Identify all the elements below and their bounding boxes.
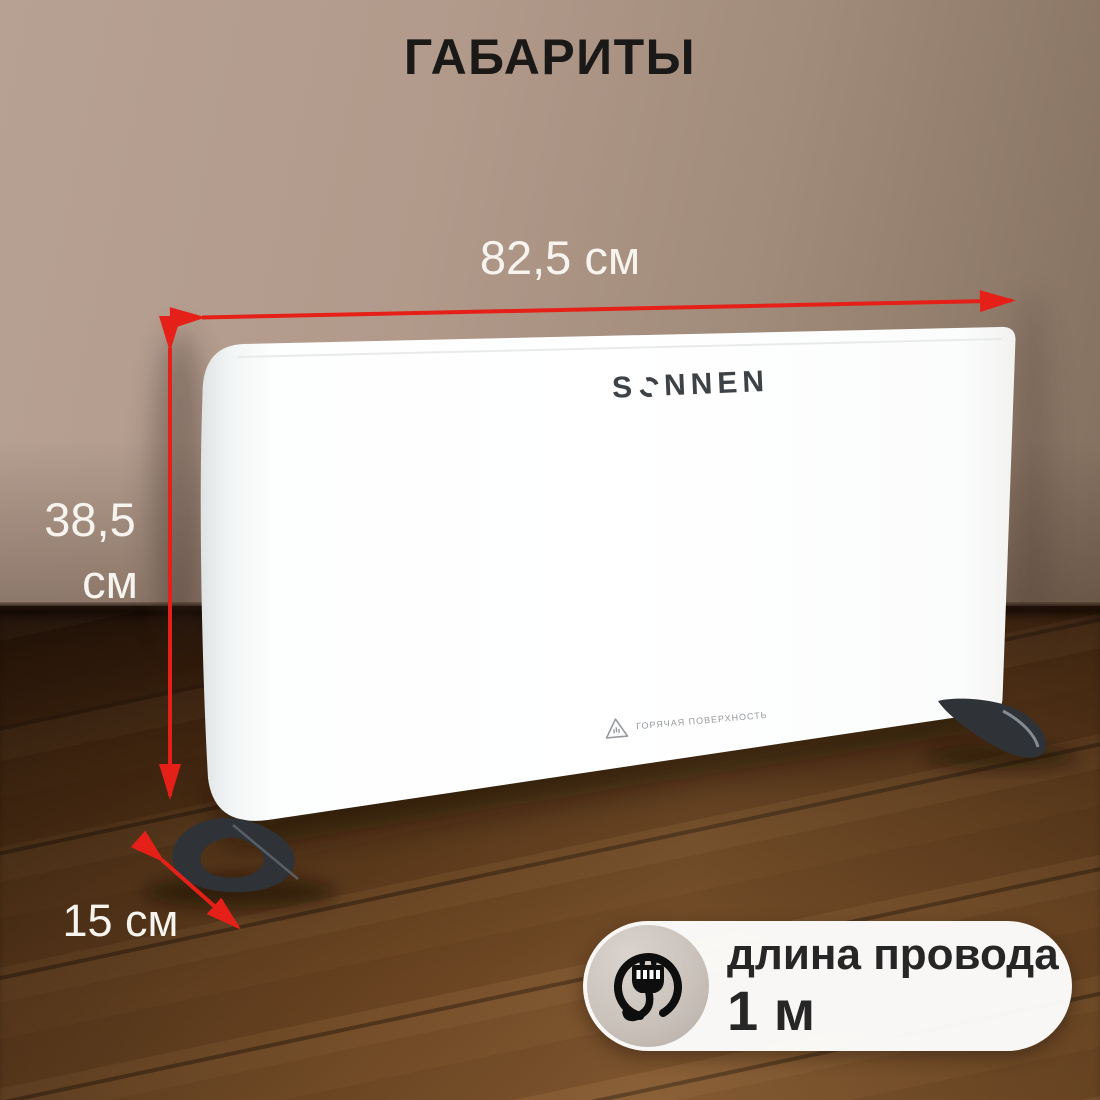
brand-logo-o-icon: [636, 374, 663, 401]
plug-icon: [602, 940, 694, 1032]
page-title: ГАБАРИТЫ: [0, 28, 1100, 86]
heater-body: [201, 327, 1016, 821]
depth-dimension-label: 15 см: [38, 898, 203, 943]
cord-length-value: 1 м: [727, 981, 1059, 1040]
height-dimension-value: 38,5: [34, 496, 146, 543]
brand-logo-rest: NNEN: [663, 365, 769, 403]
plug-icon-circle: [587, 925, 709, 1047]
product-dimensions-infographic: ГАБАРИТЫ 82,5 см 38,5 см 15 см SNNEN ГОР…: [0, 0, 1100, 1100]
width-dimension-label: 82,5 см: [410, 234, 710, 281]
height-dimension-unit: см: [54, 558, 166, 605]
warning-triangle-icon: [602, 715, 630, 741]
cord-length-label: длина провода: [727, 932, 1059, 979]
cord-length-badge: длина провода 1 м: [583, 921, 1072, 1051]
hot-surface-warning-label: ГОРЯЧАЯ ПОВЕРХНОСТЬ: [636, 710, 768, 731]
width-arrow: [202, 301, 1012, 318]
brand-logo-s: S: [611, 371, 637, 405]
wall-shadow-right: [1012, 290, 1052, 650]
cord-length-text: длина провода 1 м: [727, 932, 1059, 1041]
